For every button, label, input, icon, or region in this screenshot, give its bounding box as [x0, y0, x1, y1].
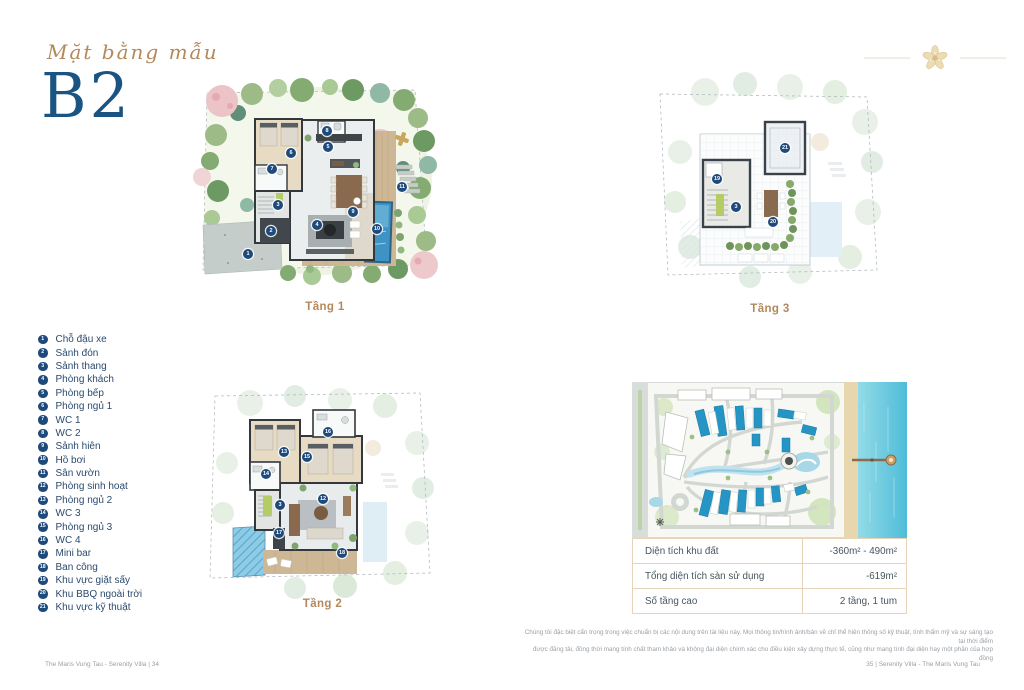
legend-item-4: 4Phòng khách [38, 373, 208, 386]
legend: 1Chỗ đậu xe2Sảnh đón3Sảnh thang4Phòng kh… [38, 333, 208, 614]
legend-number-badge: 19 [38, 576, 48, 586]
brochure-page: Mặt bằng mẫu B2 [0, 0, 1024, 690]
info-table-row: Số tầng cao2 tầng, 1 tum [633, 588, 906, 613]
floorplan-tang2: 131615143121718 Tầng 2 [205, 378, 440, 600]
floorplan-tang1-label: Tầng 1 [190, 301, 460, 313]
legend-item-17: 17Mini bar [38, 547, 208, 560]
plan-marker-1: 1 [243, 249, 253, 259]
plan-marker-19: 19 [712, 174, 722, 184]
legend-number-badge: 16 [38, 536, 48, 546]
legend-item-10: 10Hồ bơi [38, 454, 208, 467]
legend-label: Mini bar [56, 548, 92, 559]
legend-label: Khu BBQ ngoài trời [56, 589, 143, 600]
legend-label: Khu vực giặt sấy [56, 575, 131, 586]
legend-label: Sảnh thang [56, 361, 107, 372]
disclaimer-text: Chúng tôi đặc biệt cẩn trọng trong việc … [523, 629, 993, 663]
masterplan-map [632, 382, 907, 538]
legend-number-badge: 4 [38, 375, 48, 385]
legend-number-badge: 5 [38, 389, 48, 399]
floorplan-tang3: 2119320 Tầng 3 [650, 62, 890, 300]
plan-marker-3: 3 [731, 202, 741, 212]
legend-number-badge: 13 [38, 496, 48, 506]
disclaimer-line2: được đăng tải, đồng thời mang tính chất … [533, 646, 993, 662]
info-table-label: Số tầng cao [633, 596, 802, 607]
legend-number-badge: 10 [38, 455, 48, 465]
legend-item-8: 8WC 2 [38, 427, 208, 440]
plan-marker-2: 2 [266, 226, 276, 236]
page-title: B2 [41, 62, 132, 130]
plan-marker-6: 6 [286, 148, 296, 158]
floorplan-tang1-markers: 1234567891011 [190, 73, 460, 298]
info-table-row: Diện tích khu đất-360m² - 490m² [633, 539, 906, 563]
legend-item-21: 21Khu vực kỹ thuật [38, 601, 208, 614]
plan-marker-9: 9 [348, 207, 358, 217]
floorplan-tang2-label: Tầng 2 [205, 598, 440, 610]
legend-item-2: 2Sảnh đón [38, 346, 208, 359]
legend-item-18: 18Ban công [38, 561, 208, 574]
floorplan-tang2-markers: 131615143121718 [205, 378, 440, 600]
legend-number-badge: 14 [38, 509, 48, 519]
legend-item-11: 11Sân vườn [38, 467, 208, 480]
legend-number-badge: 20 [38, 589, 48, 599]
legend-number-badge: 3 [38, 362, 48, 372]
page-footer-left: The Maris Vung Tau - Serenity Villa | 34 [45, 661, 159, 668]
legend-label: Phòng ngủ 3 [56, 522, 113, 533]
legend-item-19: 19Khu vực giặt sấy [38, 574, 208, 587]
legend-label: Phòng sinh hoạt [56, 481, 128, 492]
page-footer-right: 35 | Serenity Villa - The Maris Vung Tau [866, 661, 980, 668]
legend-label: Phòng ngủ 2 [56, 495, 113, 506]
floorplan-tang3-label: Tầng 3 [650, 303, 890, 315]
disclaimer-line1: Chúng tôi đặc biệt cẩn trọng trong việc … [525, 629, 993, 645]
legend-number-badge: 15 [38, 522, 48, 532]
plan-marker-17: 17 [274, 528, 284, 538]
plan-marker-14: 14 [261, 469, 271, 479]
legend-number-badge: 18 [38, 563, 48, 573]
legend-label: Hồ bơi [56, 455, 86, 466]
legend-item-9: 9Sảnh hiên [38, 440, 208, 453]
legend-label: Phòng ngủ 1 [56, 401, 113, 412]
info-table-label: Tổng diện tích sàn sử dụng [633, 571, 802, 582]
plan-marker-4: 4 [312, 220, 322, 230]
info-table: Diện tích khu đất-360m² - 490m²Tổng diện… [632, 538, 907, 614]
legend-label: Sảnh hiên [56, 441, 101, 452]
info-table-row: Tổng diện tích sàn sử dụng-619m² [633, 563, 906, 588]
floorplan-tang1: 1234567891011 Tầng 1 [190, 73, 460, 298]
legend-label: Ban công [56, 562, 98, 573]
plan-marker-10: 10 [372, 224, 382, 234]
legend-label: Phòng khách [56, 374, 114, 385]
legend-number-badge: 21 [38, 603, 48, 613]
legend-number-badge: 9 [38, 442, 48, 452]
floorplan-tang3-markers: 2119320 [650, 62, 890, 300]
legend-label: Sảnh đón [56, 348, 99, 359]
plan-marker-12: 12 [318, 494, 328, 504]
legend-label: Chỗ đậu xe [56, 334, 107, 345]
legend-number-badge: 1 [38, 335, 48, 345]
legend-item-13: 13Phòng ngủ 2 [38, 494, 208, 507]
legend-item-5: 5Phòng bếp [38, 387, 208, 400]
legend-number-badge: 8 [38, 429, 48, 439]
legend-item-16: 16WC 4 [38, 534, 208, 547]
plan-marker-15: 15 [302, 452, 312, 462]
plan-marker-11: 11 [397, 182, 407, 192]
legend-item-3: 3Sảnh thang [38, 360, 208, 373]
legend-label: WC 4 [56, 535, 81, 546]
legend-label: WC 2 [56, 428, 81, 439]
info-table-value: -619m² [802, 564, 906, 588]
legend-number-badge: 2 [38, 348, 48, 358]
legend-number-badge: 7 [38, 415, 48, 425]
legend-number-badge: 12 [38, 482, 48, 492]
legend-number-badge: 17 [38, 549, 48, 559]
legend-label: Phòng bếp [56, 388, 104, 399]
legend-label: Sân vườn [56, 468, 100, 479]
info-table-label: Diện tích khu đất [633, 546, 802, 557]
legend-number-badge: 6 [38, 402, 48, 412]
legend-item-14: 14WC 3 [38, 507, 208, 520]
legend-label: Khu vực kỹ thuật [56, 602, 131, 613]
legend-item-1: 1Chỗ đậu xe [38, 333, 208, 346]
legend-item-6: 6Phòng ngủ 1 [38, 400, 208, 413]
plan-marker-3: 3 [273, 200, 283, 210]
legend-number-badge: 11 [38, 469, 48, 479]
info-table-value: -360m² - 490m² [802, 539, 906, 563]
plan-marker-13: 13 [279, 447, 289, 457]
legend-item-12: 12Phòng sinh hoạt [38, 480, 208, 493]
info-table-value: 2 tầng, 1 tum [802, 589, 906, 613]
plan-marker-3: 3 [275, 500, 285, 510]
plan-marker-18: 18 [337, 548, 347, 558]
legend-label: WC 3 [56, 508, 81, 519]
plan-marker-7: 7 [267, 164, 277, 174]
legend-item-20: 20Khu BBQ ngoài trời [38, 587, 208, 600]
plan-marker-21: 21 [780, 143, 790, 153]
plan-marker-5: 5 [323, 142, 333, 152]
legend-item-7: 7WC 1 [38, 413, 208, 426]
plan-marker-16: 16 [323, 427, 333, 437]
plan-marker-8: 8 [322, 126, 332, 136]
legend-label: WC 1 [56, 415, 81, 426]
plan-marker-20: 20 [768, 217, 778, 227]
legend-item-15: 15Phòng ngủ 3 [38, 520, 208, 533]
